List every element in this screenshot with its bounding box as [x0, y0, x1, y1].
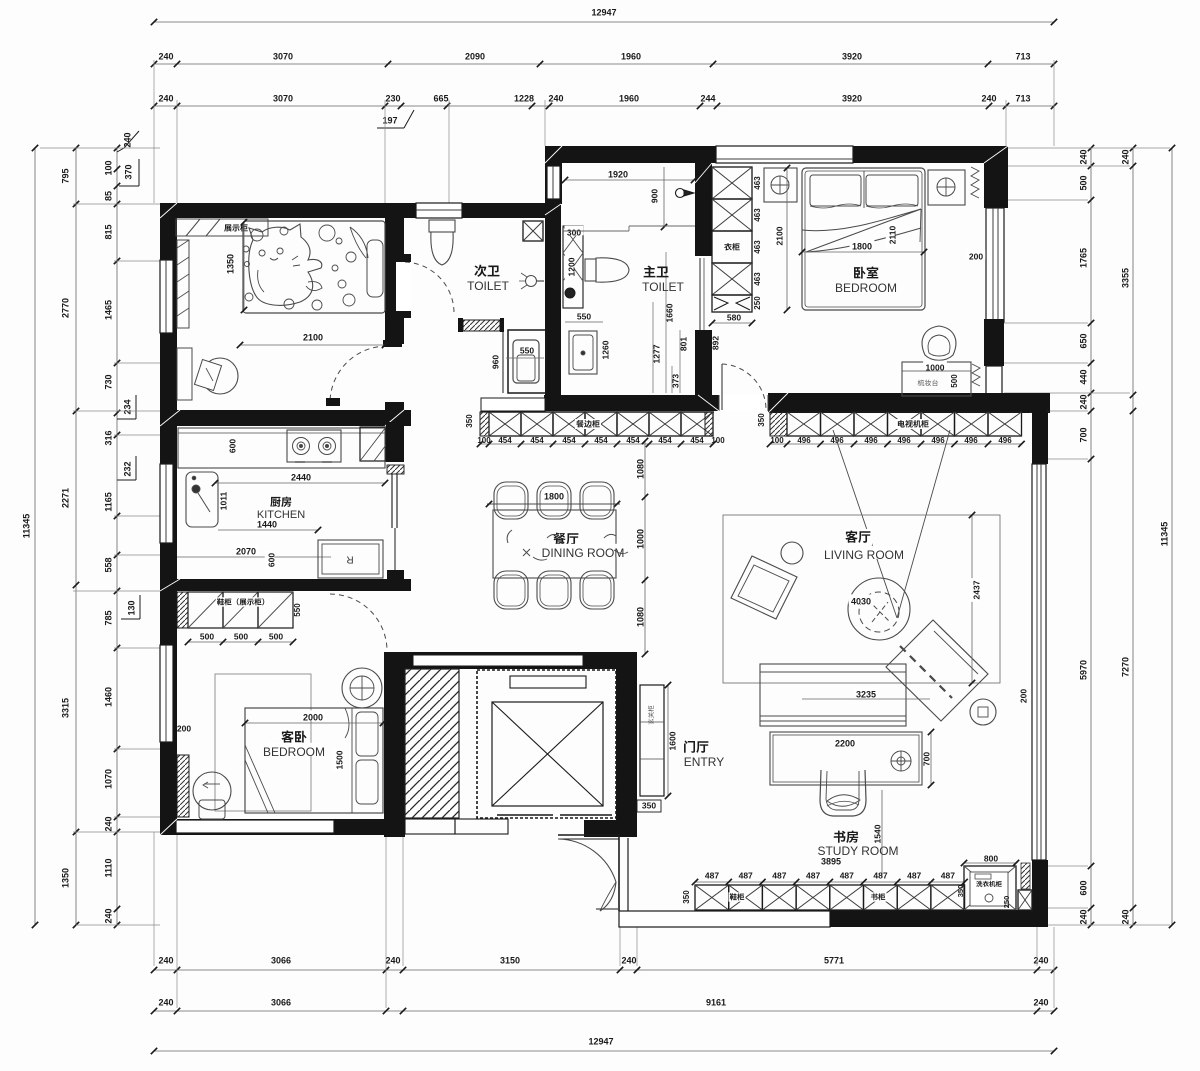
svg-text:ENTRY: ENTRY — [684, 755, 724, 769]
svg-text:1080: 1080 — [635, 459, 645, 479]
svg-text:463: 463 — [753, 176, 762, 190]
svg-text:800: 800 — [984, 853, 998, 863]
svg-text:463: 463 — [753, 208, 762, 222]
svg-text:487: 487 — [873, 870, 887, 880]
svg-text:1920: 1920 — [608, 169, 628, 179]
svg-text:801: 801 — [678, 337, 688, 351]
svg-text:240: 240 — [1078, 394, 1088, 409]
svg-text:5970: 5970 — [1078, 660, 1088, 680]
svg-text:454: 454 — [498, 436, 512, 445]
svg-text:1500: 1500 — [334, 750, 344, 769]
svg-text:500: 500 — [200, 631, 214, 641]
svg-text:1540: 1540 — [872, 824, 882, 843]
svg-text:240: 240 — [158, 51, 173, 61]
svg-text:244: 244 — [700, 93, 715, 103]
svg-text:1660: 1660 — [664, 303, 674, 322]
svg-text:TOILET: TOILET — [642, 280, 684, 294]
svg-text:9161: 9161 — [706, 997, 726, 1007]
svg-text:1080: 1080 — [635, 607, 645, 627]
svg-text:500: 500 — [1078, 175, 1088, 190]
svg-text:BEDROOM: BEDROOM — [263, 745, 325, 759]
svg-text:487: 487 — [739, 870, 753, 880]
svg-text:1277: 1277 — [651, 344, 661, 363]
svg-text:LIVING ROOM: LIVING ROOM — [824, 548, 904, 562]
svg-text:1460: 1460 — [103, 687, 113, 707]
svg-text:700: 700 — [1078, 427, 1088, 442]
svg-text:11345: 11345 — [21, 514, 31, 539]
svg-text:2271: 2271 — [60, 488, 70, 508]
svg-text:550: 550 — [520, 345, 534, 355]
svg-text:DINING ROOM: DINING ROOM — [542, 546, 625, 560]
svg-text:2000: 2000 — [303, 712, 323, 722]
svg-text:1000: 1000 — [926, 362, 945, 372]
svg-text:487: 487 — [840, 870, 854, 880]
svg-text:600: 600 — [227, 439, 237, 453]
svg-text:3070: 3070 — [273, 93, 293, 103]
svg-text:3920: 3920 — [842, 51, 862, 61]
svg-text:1600: 1600 — [667, 731, 677, 750]
svg-text:960: 960 — [490, 355, 500, 369]
svg-text:240: 240 — [1078, 149, 1088, 164]
svg-text:240: 240 — [1033, 997, 1048, 1007]
svg-text:463: 463 — [753, 240, 762, 254]
svg-text:240: 240 — [981, 93, 996, 103]
svg-text:1800: 1800 — [544, 491, 564, 501]
svg-text:600: 600 — [1078, 880, 1088, 895]
svg-text:BEDROOM: BEDROOM — [835, 281, 897, 295]
svg-text:892: 892 — [710, 336, 720, 350]
svg-text:1110: 1110 — [103, 858, 113, 877]
svg-text:487: 487 — [806, 870, 820, 880]
svg-text:2770: 2770 — [60, 298, 70, 318]
svg-text:240: 240 — [103, 816, 113, 831]
svg-text:900: 900 — [649, 189, 659, 203]
svg-text:3315: 3315 — [60, 698, 70, 718]
svg-text:1200: 1200 — [566, 257, 576, 276]
svg-text:3066: 3066 — [271, 955, 291, 965]
svg-text:500: 500 — [950, 374, 959, 388]
svg-text:2437: 2437 — [971, 580, 981, 599]
svg-text:487: 487 — [941, 870, 955, 880]
svg-text:240: 240 — [158, 955, 173, 965]
svg-text:1960: 1960 — [619, 93, 639, 103]
svg-text:100: 100 — [770, 436, 784, 445]
svg-text:496: 496 — [797, 436, 811, 445]
svg-text:1228: 1228 — [514, 93, 534, 103]
svg-text:496: 496 — [964, 436, 978, 445]
svg-text:580: 580 — [727, 312, 741, 322]
svg-text:500: 500 — [269, 631, 283, 641]
svg-text:2070: 2070 — [236, 546, 256, 556]
svg-text:2090: 2090 — [465, 51, 485, 61]
svg-text:85: 85 — [103, 191, 113, 201]
svg-text:12947: 12947 — [588, 1036, 613, 1046]
svg-text:100: 100 — [477, 436, 491, 445]
svg-text:487: 487 — [772, 870, 786, 880]
svg-text:KITCHEN: KITCHEN — [257, 509, 305, 521]
svg-text:240: 240 — [548, 93, 563, 103]
svg-text:487: 487 — [705, 870, 719, 880]
svg-text:500: 500 — [234, 631, 248, 641]
svg-text:496: 496 — [864, 436, 878, 445]
svg-text:130: 130 — [126, 600, 136, 615]
svg-text:3150: 3150 — [500, 955, 520, 965]
svg-text:240: 240 — [103, 908, 113, 923]
svg-text:650: 650 — [1078, 333, 1088, 348]
svg-text:316: 316 — [103, 430, 113, 445]
svg-text:454: 454 — [658, 436, 672, 445]
svg-text:454: 454 — [530, 436, 544, 445]
svg-text:240: 240 — [1078, 909, 1088, 924]
svg-text:1800: 1800 — [852, 241, 872, 251]
svg-text:463: 463 — [753, 272, 762, 286]
svg-text:230: 230 — [385, 93, 400, 103]
svg-text:1011: 1011 — [218, 492, 228, 511]
svg-text:250: 250 — [1002, 896, 1011, 909]
svg-text:1070: 1070 — [103, 769, 113, 789]
svg-text:700: 700 — [921, 752, 931, 766]
svg-text:250: 250 — [753, 296, 762, 310]
svg-text:785: 785 — [103, 610, 113, 625]
svg-text:1165: 1165 — [103, 492, 113, 512]
svg-text:1350: 1350 — [60, 868, 70, 888]
svg-text:5771: 5771 — [824, 955, 844, 965]
svg-text:240: 240 — [1120, 149, 1130, 164]
svg-text:350: 350 — [682, 890, 691, 904]
svg-text:550: 550 — [293, 603, 302, 617]
svg-text:795: 795 — [60, 168, 70, 183]
svg-text:373: 373 — [670, 374, 680, 388]
svg-text:12947: 12947 — [591, 7, 616, 17]
svg-text:240: 240 — [621, 955, 636, 965]
svg-text:496: 496 — [897, 436, 911, 445]
svg-text:2110: 2110 — [887, 226, 897, 245]
svg-text:2100: 2100 — [303, 332, 323, 342]
svg-text:240: 240 — [158, 997, 173, 1007]
svg-text:200: 200 — [969, 251, 983, 261]
svg-text:496: 496 — [998, 436, 1012, 445]
svg-text:454: 454 — [690, 436, 704, 445]
svg-text:454: 454 — [594, 436, 608, 445]
svg-text:665: 665 — [433, 93, 448, 103]
svg-text:3070: 3070 — [273, 51, 293, 61]
svg-text:TOILET: TOILET — [467, 279, 509, 293]
svg-text:4030: 4030 — [851, 596, 871, 606]
svg-text:240: 240 — [1120, 909, 1130, 924]
svg-text:558: 558 — [103, 557, 113, 572]
svg-text:1465: 1465 — [103, 300, 113, 320]
svg-text:1260: 1260 — [600, 340, 610, 359]
svg-text:1350: 1350 — [225, 254, 235, 274]
svg-text:550: 550 — [577, 311, 591, 321]
svg-text:730: 730 — [103, 374, 113, 389]
svg-text:240: 240 — [1033, 955, 1048, 965]
svg-text:234: 234 — [122, 399, 132, 414]
svg-text:240: 240 — [158, 93, 173, 103]
svg-text:3066: 3066 — [271, 997, 291, 1007]
svg-text:100: 100 — [711, 436, 725, 445]
svg-text:200: 200 — [177, 723, 191, 733]
svg-text:100: 100 — [103, 160, 113, 175]
svg-text:240: 240 — [385, 955, 400, 965]
svg-text:713: 713 — [1015, 51, 1030, 61]
svg-text:440: 440 — [1078, 369, 1088, 384]
svg-text:1000: 1000 — [635, 529, 645, 549]
svg-text:3920: 3920 — [842, 93, 862, 103]
svg-text:370: 370 — [123, 164, 133, 179]
svg-text:R: R — [346, 553, 353, 564]
svg-text:713: 713 — [1015, 93, 1030, 103]
svg-text:496: 496 — [931, 436, 945, 445]
svg-text:200: 200 — [1018, 689, 1028, 703]
svg-text:2200: 2200 — [835, 738, 855, 748]
svg-text:2440: 2440 — [291, 472, 311, 482]
svg-text:350: 350 — [757, 413, 766, 427]
svg-text:3355: 3355 — [1120, 268, 1130, 288]
svg-text:7270: 7270 — [1120, 657, 1130, 677]
svg-text:232: 232 — [122, 461, 132, 476]
svg-text:2100: 2100 — [774, 226, 784, 245]
svg-text:3235: 3235 — [856, 689, 876, 699]
svg-text:1765: 1765 — [1078, 248, 1088, 268]
svg-text:600: 600 — [266, 553, 276, 567]
svg-text:350: 350 — [956, 885, 965, 898]
svg-text:454: 454 — [626, 436, 640, 445]
svg-text:3895: 3895 — [821, 856, 841, 866]
svg-text:1960: 1960 — [621, 51, 641, 61]
svg-text:350: 350 — [642, 800, 656, 810]
svg-text:815: 815 — [103, 224, 113, 239]
svg-text:454: 454 — [562, 436, 576, 445]
svg-text:300: 300 — [567, 227, 581, 237]
svg-text:11345: 11345 — [1159, 522, 1169, 547]
svg-text:350: 350 — [465, 414, 474, 428]
svg-text:487: 487 — [907, 870, 921, 880]
